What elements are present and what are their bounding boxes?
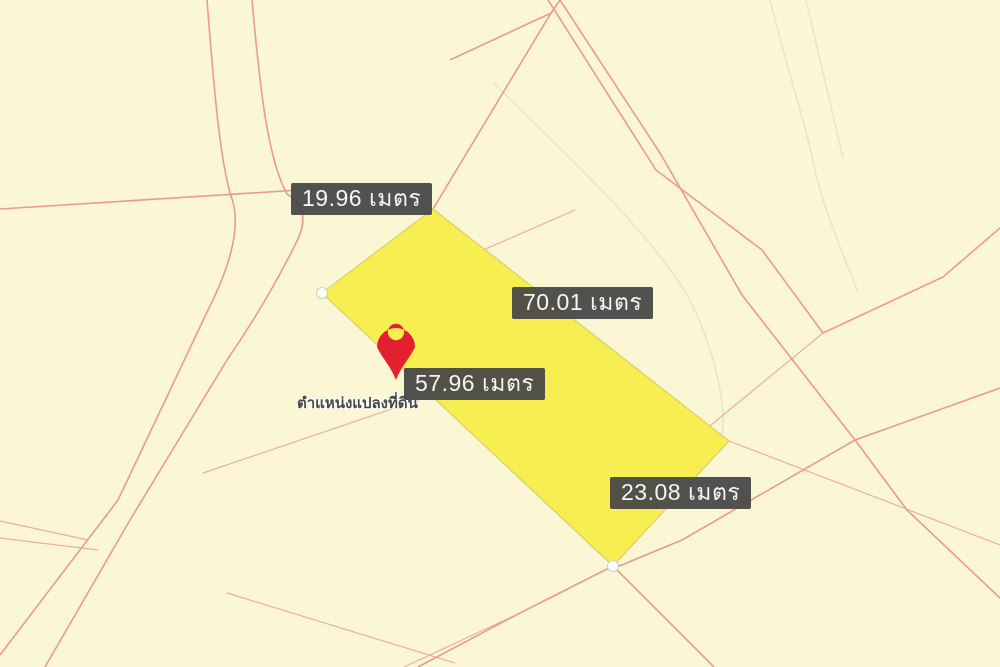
- measurement-label-northeast: 70.01 เมตร: [512, 287, 653, 319]
- road-edge-right: [45, 0, 303, 667]
- map-layers: [0, 0, 1000, 667]
- map-canvas[interactable]: ตำแหน่งแปลงที่ดิน 19.96 เมตร 70.01 เมตร …: [0, 0, 1000, 667]
- parcel-caption: ตำแหน่งแปลงที่ดิน: [297, 391, 418, 415]
- vertex-handle[interactable]: [317, 288, 328, 299]
- measurement-label-southeast: 23.08 เมตร: [610, 477, 751, 509]
- measurement-label-northwest: 19.96 เมตร: [291, 183, 432, 215]
- road-edge-left: [0, 0, 235, 655]
- vertex-handle[interactable]: [608, 561, 619, 572]
- measurement-label-southwest: 57.96 เมตร: [404, 368, 545, 400]
